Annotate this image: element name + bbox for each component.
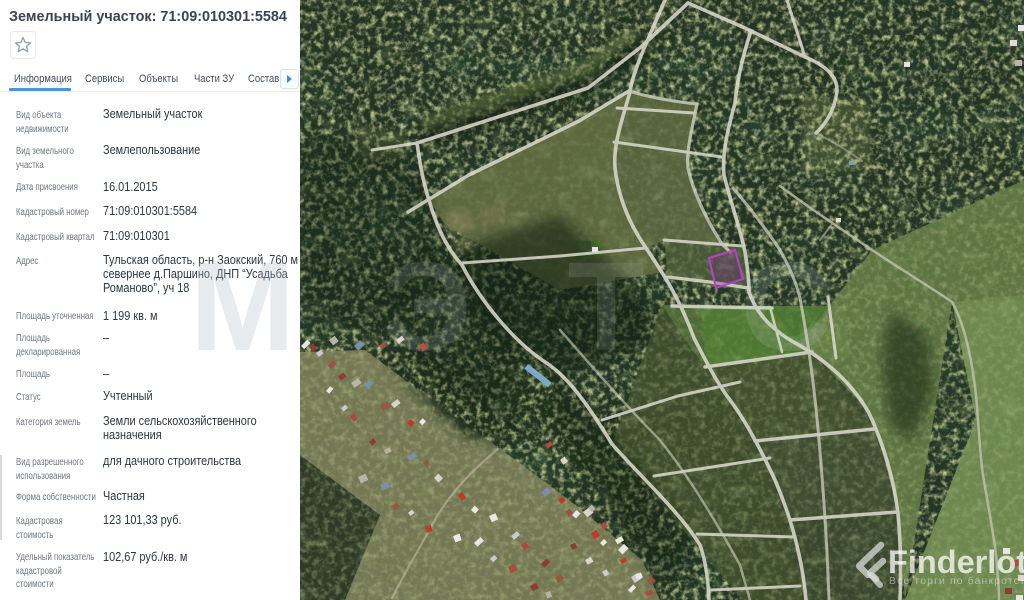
svg-text:Все торги по банкротству: Все торги по банкротству bbox=[889, 575, 1024, 587]
